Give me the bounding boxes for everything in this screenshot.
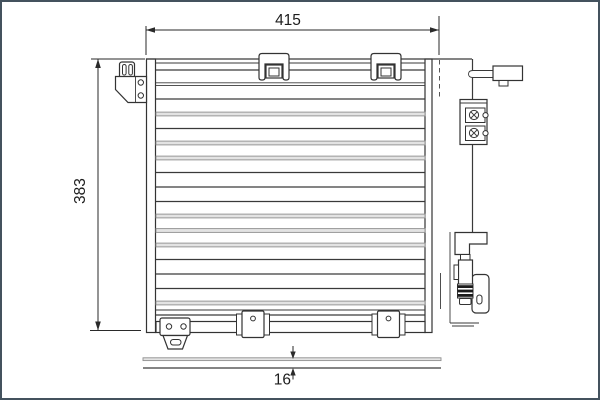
port-notch bbox=[483, 131, 488, 136]
fin-row bbox=[156, 156, 425, 160]
fin-row bbox=[156, 112, 425, 116]
bracket-hole bbox=[138, 93, 143, 98]
dim-width-label: 415 bbox=[275, 12, 301, 29]
clamp-flange bbox=[264, 314, 270, 335]
bracket-square-hole-inner bbox=[269, 68, 279, 76]
connector-block bbox=[493, 66, 523, 81]
clamp-flange bbox=[400, 314, 406, 335]
bracket-hole bbox=[181, 324, 186, 329]
upper-left-mounting-bracket bbox=[116, 62, 147, 103]
arrowhead-top bbox=[95, 59, 101, 68]
valve-body bbox=[459, 260, 473, 285]
arrowhead-bottom bbox=[95, 322, 101, 331]
connection-block bbox=[460, 100, 488, 145]
left-header-tank bbox=[147, 59, 156, 333]
connector-tab bbox=[499, 81, 508, 87]
condenser-core bbox=[146, 59, 432, 333]
arrowhead-up bbox=[290, 368, 295, 376]
dim-height-label: 383 bbox=[72, 178, 89, 204]
arrowhead-left bbox=[146, 27, 155, 33]
connector-tube-fill bbox=[469, 71, 494, 78]
bracket-hole bbox=[138, 80, 143, 85]
valve-thread-ring bbox=[458, 294, 474, 297]
lower-fitting-assembly bbox=[450, 233, 489, 327]
inlet-connector bbox=[469, 66, 523, 86]
plate-slot bbox=[477, 295, 482, 304]
clamp-block bbox=[378, 311, 400, 338]
bracket-slot bbox=[129, 65, 133, 76]
fin-row bbox=[156, 301, 425, 305]
dimension-depth: 16 bbox=[274, 346, 296, 389]
tube-clamp-left bbox=[237, 311, 270, 338]
side-view-top-face bbox=[143, 358, 441, 361]
top-bracket-right bbox=[371, 54, 401, 81]
bracket-slot bbox=[123, 65, 127, 76]
fin-row bbox=[156, 229, 425, 233]
arrowhead-right bbox=[430, 27, 439, 33]
fin-row bbox=[156, 243, 425, 247]
mounting-plate bbox=[472, 275, 489, 314]
condenser-technical-drawing: 415 383 16 bbox=[2, 2, 600, 400]
lower-left-mounting-bracket bbox=[160, 318, 190, 349]
bracket-slot bbox=[171, 340, 182, 346]
clamp-flange bbox=[237, 314, 243, 335]
clamp-block bbox=[242, 311, 264, 338]
fin-row bbox=[156, 214, 425, 218]
bracket-square-hole-inner bbox=[381, 68, 391, 76]
side-view bbox=[143, 358, 441, 368]
valve-stem bbox=[461, 255, 471, 261]
clamp-flange bbox=[372, 314, 378, 335]
clamp-hole bbox=[251, 316, 256, 321]
valve-cap bbox=[460, 299, 472, 305]
valve-tab bbox=[454, 265, 459, 280]
right-header-tank bbox=[425, 59, 432, 333]
fin-row bbox=[156, 141, 425, 145]
fitting-block bbox=[455, 233, 487, 255]
clamp-hole bbox=[386, 316, 391, 321]
dim-depth-label: 16 bbox=[274, 372, 291, 389]
valve-thread-ring bbox=[458, 290, 474, 293]
right-piping-assembly bbox=[432, 59, 523, 326]
top-bracket-left bbox=[259, 54, 289, 81]
drawing-canvas: 415 383 16 bbox=[0, 0, 600, 400]
tube-clamp-right bbox=[372, 311, 405, 338]
valve-thread-ring bbox=[458, 285, 474, 288]
bracket-hole bbox=[166, 324, 171, 329]
port-notch bbox=[483, 113, 488, 118]
